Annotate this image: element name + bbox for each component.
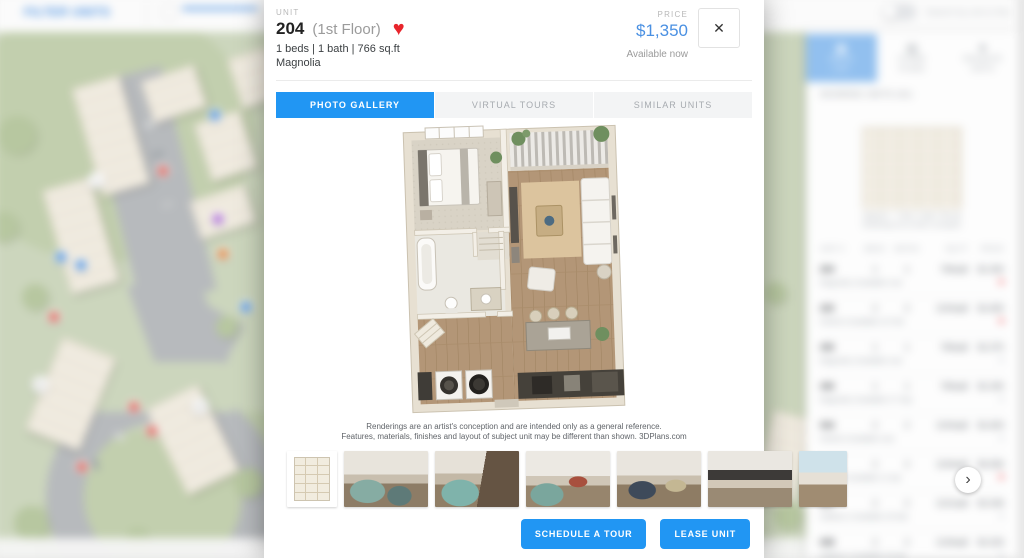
unit-row[interactable]: 544 2 2 1154sqft $1,603 Oxford | Availab… — [820, 414, 1004, 453]
filter-units-button[interactable]: FILTER UNITS — [24, 5, 110, 19]
unit-marker-blue[interactable] — [74, 258, 88, 272]
favorite-heart-icon[interactable]: ♥ — [999, 395, 1004, 404]
tab-floor-plans[interactable]: ▤ FLOOR PLANS — [877, 34, 948, 82]
header-divider — [276, 80, 752, 81]
schedule-tour-button[interactable]: SCHEDULE A TOUR — [521, 519, 647, 549]
tree — [14, 506, 48, 540]
sidebar-tabs: ▦ UNITS LIST ▤ FLOOR PLANS ♥ FAVORITE UN… — [806, 34, 1018, 82]
building-marker[interactable]: 6 — [192, 398, 209, 415]
unit-row[interactable]: 648 2 2 1134sqft $1,520 Addison | Availa… — [820, 531, 1004, 558]
active-filter-indicator — [182, 7, 258, 10]
next-thumbnails-button[interactable]: › — [955, 467, 981, 493]
unit-marker-blue[interactable] — [239, 300, 253, 314]
favorite-heart-icon[interactable]: ♥ — [999, 512, 1004, 521]
tree — [22, 284, 48, 310]
app-screen: FILTER UNITS Search by unit or floor pla… — [0, 0, 1024, 558]
thumbnail-photo[interactable] — [617, 451, 701, 507]
units-table: 204 1 1 766sqft $1,350 Magnolia | Availa… — [820, 258, 1004, 558]
units-table-header: UNIT # BEDS BATHS SQ FT PRICE — [820, 246, 1004, 253]
building-marker[interactable]: 1 — [88, 172, 105, 189]
favorite-heart-icon[interactable]: ♥ — [393, 20, 405, 38]
preview-caption: Magnolia — 1 Bed | 1 Bath | 766 sqft — [816, 214, 1008, 220]
tree — [216, 316, 238, 338]
floorplan-preview-image[interactable] — [862, 127, 962, 209]
mini-floorplan — [294, 457, 330, 501]
lease-unit-button[interactable]: LEASE UNIT — [660, 519, 750, 549]
unit-row[interactable]: 647 2 2 1121sqft $1,546 Addison | Availa… — [820, 492, 1004, 531]
preview-caption: Renderings are an artist's conception — [816, 223, 1008, 229]
thumbnail-photo[interactable] — [708, 451, 792, 507]
unit-marker-orange[interactable] — [216, 247, 230, 261]
price-label: PRICE — [626, 10, 688, 19]
favorite-heart-icon[interactable]: ♥ — [999, 317, 1004, 326]
modal-footer: SCHEDULE A TOUR LEASE UNIT — [521, 519, 750, 549]
thumbnail-photo[interactable] — [526, 451, 610, 507]
unit-row[interactable]: 436 1 1 766sqft $1,375 Magnolia | Availa… — [820, 336, 1004, 375]
unit-marker-blue[interactable] — [208, 108, 222, 122]
unit-row[interactable]: 446 1 1 766sqft $1,345 Magnolia | Availa… — [820, 375, 1004, 414]
map-toggle-switch[interactable] — [882, 4, 916, 20]
unit-marker-purple[interactable] — [211, 212, 225, 226]
search-input[interactable]: Search by unit or floor plan — [926, 7, 1010, 17]
thumbnail-photo[interactable] — [799, 451, 847, 507]
favorite-heart-icon[interactable]: ♥ — [999, 356, 1004, 365]
heart-icon: ♥ — [979, 42, 986, 54]
tab-similar-units[interactable]: SIMILAR UNITS — [594, 92, 752, 118]
tab-favorite-units[interactable]: ♥ FAVORITE UNITS — [947, 34, 1018, 82]
building-marker[interactable]: 5 — [32, 376, 49, 393]
rendering-disclaimer: Renderings are an artist's conception an… — [276, 422, 752, 442]
unit-floor: (1st Floor) — [312, 21, 380, 38]
unit-marker-red[interactable] — [47, 310, 61, 324]
floor-plan-image — [378, 121, 650, 415]
thumbnail-photo[interactable] — [435, 451, 519, 507]
favorite-heart-icon[interactable]: ♥ — [999, 551, 1004, 558]
unit-number: 204 — [276, 19, 304, 39]
tree — [234, 468, 264, 498]
tab-virtual-tours[interactable]: VIRTUAL TOURS — [435, 92, 593, 118]
floor-plan-icon: ▤ — [906, 42, 917, 54]
favorite-heart-icon[interactable]: ♥ — [999, 434, 1004, 443]
unit-marker-blue[interactable] — [54, 250, 68, 264]
favorite-heart-icon[interactable]: ♥ — [999, 278, 1004, 287]
thumbnail-photo[interactable] — [344, 451, 428, 507]
favorite-heart-icon[interactable]: ♥ — [999, 473, 1004, 482]
gallery-main-image[interactable] — [276, 118, 752, 418]
tab-photo-gallery[interactable]: PHOTO GALLERY — [276, 92, 434, 118]
unit-marker-red[interactable] — [145, 424, 159, 438]
tree — [764, 282, 786, 304]
unit-row[interactable]: 204 1 1 766sqft $1,350 Magnolia | Availa… — [820, 258, 1004, 297]
thumbnail-strip — [287, 450, 764, 508]
filter-checkbox[interactable] — [162, 5, 176, 19]
unit-marker-red[interactable] — [75, 460, 89, 474]
availability-text: Available now — [626, 49, 688, 60]
showing-units-label: SHOWING UNITS (31) — [820, 90, 913, 99]
thumbnail-floorplan[interactable] — [287, 451, 337, 507]
grid-icon: ▦ — [836, 42, 847, 54]
unit-marker-red[interactable] — [127, 400, 141, 414]
header-divider — [146, 0, 147, 26]
close-button[interactable]: ✕ — [698, 8, 740, 48]
modal-header: UNIT 204 (1st Floor) ♥ 1 beds | 1 bath |… — [276, 8, 752, 74]
unit-marker-red[interactable] — [156, 164, 170, 178]
modal-tabs: PHOTO GALLERY VIRTUAL TOURS SIMILAR UNIT… — [276, 92, 752, 118]
price-value: $1,350 — [626, 21, 688, 41]
toggle-knob — [883, 5, 897, 19]
tab-units-list[interactable]: ▦ UNITS LIST — [806, 34, 877, 82]
unit-row[interactable]: 220 2 2 1154sqft $1,605 Oxford | Availab… — [820, 297, 1004, 336]
unit-detail-modal: UNIT 204 (1st Floor) ♥ 1 beds | 1 bath |… — [264, 0, 764, 558]
